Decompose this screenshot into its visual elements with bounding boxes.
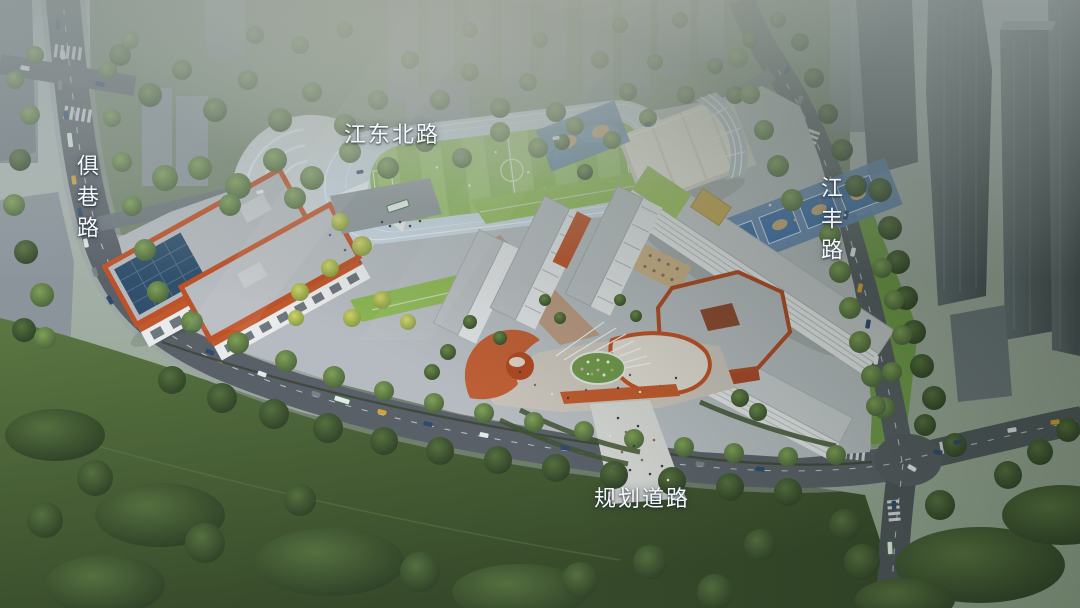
road-label-juxiang-rd: 俱巷路	[70, 154, 102, 247]
road-label-jiangfeng-rd: 江丰路	[814, 176, 846, 269]
aerial-campus-rendering: 江东北路 俱巷路 江丰路 规划道路	[0, 0, 1080, 608]
road-label-jiangdong-north-rd: 江东北路	[344, 117, 440, 149]
atmosphere	[0, 0, 1080, 608]
scene-canvas	[0, 0, 1080, 608]
road-label-planned-rd: 规划道路	[594, 481, 690, 513]
